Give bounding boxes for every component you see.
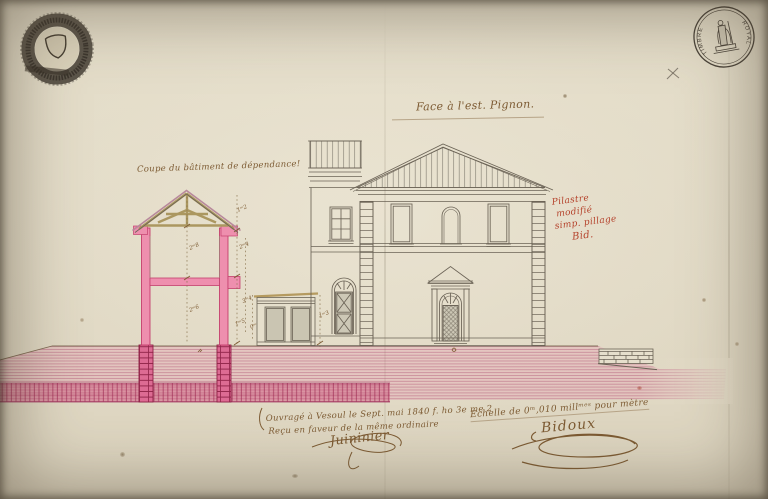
- architectural-drawing-sheet: 2ᵐ8 2ᵐ6 1ᵐ2 2ᵐ4 3ᵐ4 1ᵐ5 0ᵐ6 1ᵐ3: [0, 0, 768, 499]
- bracket-mark: [260, 408, 264, 430]
- section-roof-truss: [139, 194, 234, 230]
- door-pilaster-right: [464, 289, 469, 341]
- dim-label: 2ᵐ6: [187, 304, 200, 314]
- quoin-right: [532, 202, 545, 346]
- terrace-dark-band: [0, 383, 390, 402]
- drawing-title-text: Face à l'est. Pignon.: [416, 97, 535, 113]
- stamp-text-left: TIMBRE: [695, 25, 710, 56]
- dim-label: 2ᵐ8: [187, 242, 200, 252]
- elevation-drawing: [308, 141, 553, 346]
- upper-window-left: [389, 204, 414, 247]
- dim-label: 3ᵐ4: [241, 295, 253, 305]
- annex-door-left: [265, 307, 285, 342]
- upper-niche: [440, 207, 462, 244]
- door-pilaster-left: [432, 289, 437, 341]
- wing-door: [332, 278, 356, 334]
- upper-window-right: [486, 204, 511, 247]
- red-annotation: Pilastre modifié simp. pillage Bid.: [551, 189, 619, 246]
- stamp-figure: [708, 18, 739, 53]
- dim-label: 1ᵐ3: [318, 310, 330, 320]
- section-wall-left: [142, 228, 151, 345]
- main-roof: [350, 144, 553, 192]
- entrance-door: [428, 267, 473, 344]
- foundation-pier-right: [217, 345, 231, 402]
- dim-label: 2ᵐ4: [237, 241, 250, 251]
- foundation-pier-left: [139, 345, 153, 402]
- wing-window: [328, 207, 354, 244]
- timbre-royal-stamp: TIMBRE ROYAL: [689, 2, 759, 72]
- annex-building: [254, 294, 318, 346]
- wing-roof: [310, 141, 361, 168]
- annex-door-right: [291, 307, 311, 342]
- section-wall-right: [220, 228, 229, 345]
- wash-fade: [638, 358, 733, 404]
- main-entablature: [356, 191, 547, 202]
- signature-flourish-right: [512, 432, 637, 469]
- annex-roof-edge: [254, 294, 318, 297]
- dim-label: 1ᵐ2: [236, 204, 248, 214]
- pencil-x-mark: [667, 68, 679, 79]
- dim-label: 1ᵐ5: [234, 318, 246, 328]
- left-wing: [308, 141, 362, 346]
- section-floor-bracket: [228, 277, 240, 289]
- embossed-seal: [16, 8, 97, 89]
- ground-terrace: [0, 346, 733, 404]
- door-lattice: [443, 306, 458, 342]
- quoin-left: [360, 202, 373, 346]
